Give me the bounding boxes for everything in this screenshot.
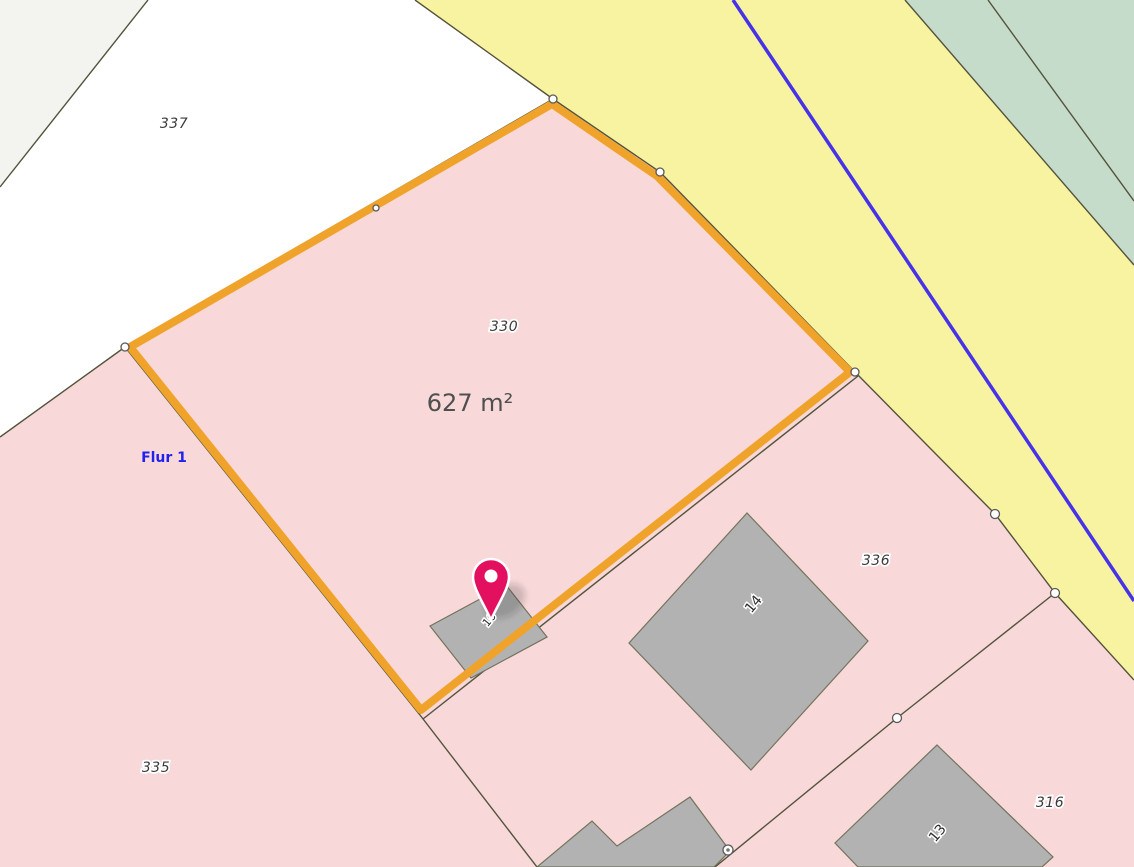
vertex-marker-dot	[726, 848, 730, 852]
flur-label: Flur 1	[141, 450, 187, 466]
vertex-marker	[991, 510, 1000, 519]
vertex-marker	[656, 168, 664, 176]
vertex-marker	[121, 343, 129, 351]
area-label: 627 m²	[427, 389, 513, 417]
vertex-marker	[549, 95, 557, 103]
vertex-marker	[373, 205, 379, 211]
parcel-label-330: 330	[490, 319, 518, 335]
vertex-marker	[893, 714, 902, 723]
parcel-label-335: 335	[142, 760, 170, 776]
cadastral-map[interactable]: 337330336316335141316627 m²Flur 1	[0, 0, 1134, 867]
vertex-marker	[851, 368, 859, 376]
parcel-label-316: 316	[1036, 795, 1064, 811]
pin-hole	[485, 570, 498, 583]
map-canvas[interactable]: 337330336316335141316627 m²Flur 1	[0, 0, 1134, 867]
parcel-label-336: 336	[862, 553, 890, 569]
parcel-label-337: 337	[160, 116, 188, 132]
vertex-marker	[1051, 589, 1060, 598]
